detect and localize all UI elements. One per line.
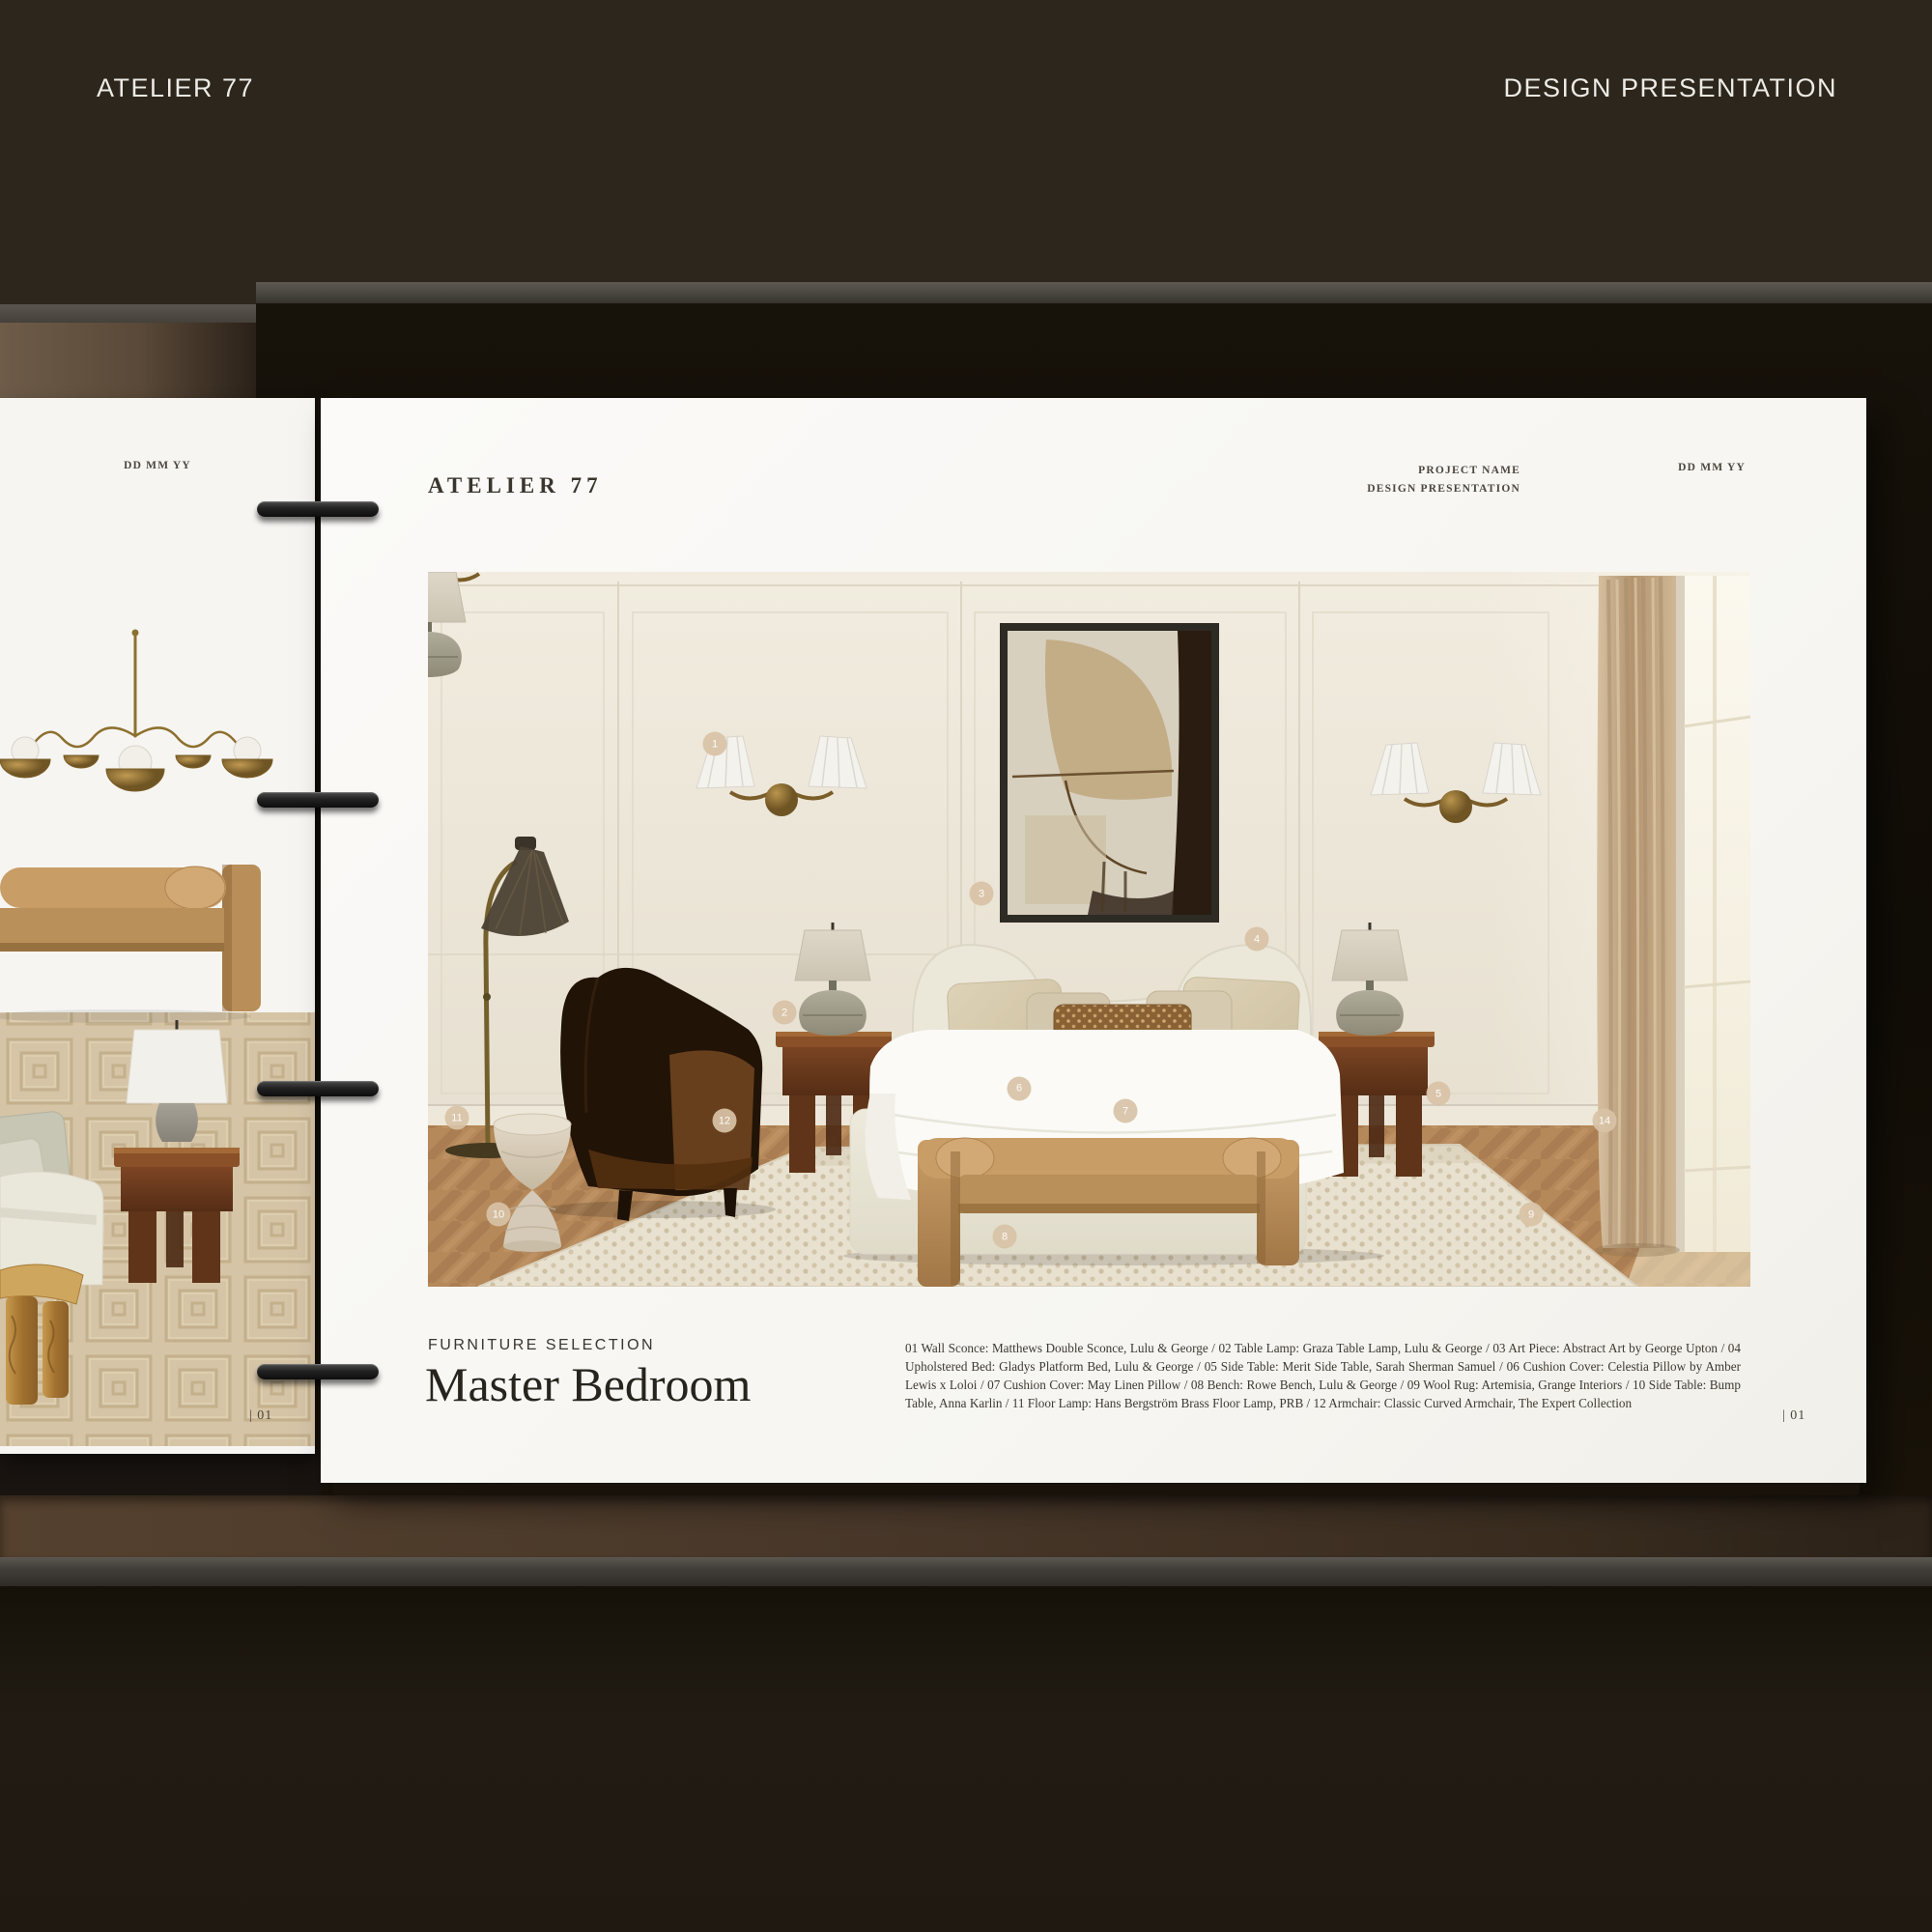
chandelier-icon <box>0 630 272 792</box>
binder-front-edge <box>0 1557 1932 1586</box>
item-marker-6: 6 <box>1008 1076 1032 1100</box>
item-marker-10: 10 <box>487 1203 511 1227</box>
scene-markers: 12345678910111214 <box>428 572 1750 1287</box>
project-name-label: PROJECT NAME <box>1238 462 1520 480</box>
section-label: FURNITURE SELECTION <box>428 1337 655 1354</box>
page-stack-edge <box>333 1483 1860 1495</box>
item-marker-5: 5 <box>1427 1082 1451 1106</box>
item-marker-2: 2 <box>773 1001 797 1025</box>
shelf-edge-left <box>0 304 256 323</box>
binder-leather-band <box>0 1495 1932 1557</box>
design-presentation-mockup: ATELIER 77 DESIGN PRESENTATION DD MM YY <box>0 0 1932 1932</box>
item-marker-4: 4 <box>1245 927 1269 952</box>
furniture-item-list: 01 Wall Sconce: Matthews Double Sconce, … <box>905 1339 1741 1412</box>
binder-under-shadow <box>0 1586 1932 1721</box>
item-marker-8: 8 <box>993 1225 1017 1249</box>
item-marker-3: 3 <box>970 882 994 906</box>
item-marker-9: 9 <box>1520 1203 1544 1227</box>
shelf-face-left <box>0 323 256 400</box>
binder-ring-4 <box>257 1364 379 1379</box>
item-marker-12: 12 <box>712 1109 736 1133</box>
binder-top-edge <box>256 282 1932 305</box>
item-marker-11: 11 <box>445 1106 469 1130</box>
presentation-page: ATELIER 77 PROJECT NAME DESIGN PRESENTAT… <box>321 398 1866 1483</box>
backdrop-brand: ATELIER 77 <box>97 73 254 103</box>
left-page-shadow <box>0 1449 321 1495</box>
bedroom-rendering: 12345678910111214 <box>428 572 1750 1287</box>
backdrop-tagline: DESIGN PRESENTATION <box>1503 73 1837 103</box>
item-marker-14: 14 <box>1593 1109 1617 1133</box>
bench-icon <box>0 865 261 1023</box>
binder-ring-1 <box>257 501 379 517</box>
page-brand: ATELIER 77 <box>428 473 603 498</box>
binder-ring-2 <box>257 792 379 808</box>
page-title: Master Bedroom <box>425 1356 751 1412</box>
page-date: DD MM YY <box>1630 462 1746 473</box>
binder-ring-3 <box>257 1081 379 1096</box>
moodboard-page: DD MM YY <box>0 398 315 1454</box>
item-marker-1: 1 <box>703 732 727 756</box>
left-page-number: | 01 <box>249 1408 272 1424</box>
page-number: | 01 <box>1782 1408 1805 1424</box>
presentation-label: DESIGN PRESENTATION <box>1238 480 1520 498</box>
moodboard-collage <box>0 398 315 1454</box>
item-marker-7: 7 <box>1114 1099 1138 1123</box>
